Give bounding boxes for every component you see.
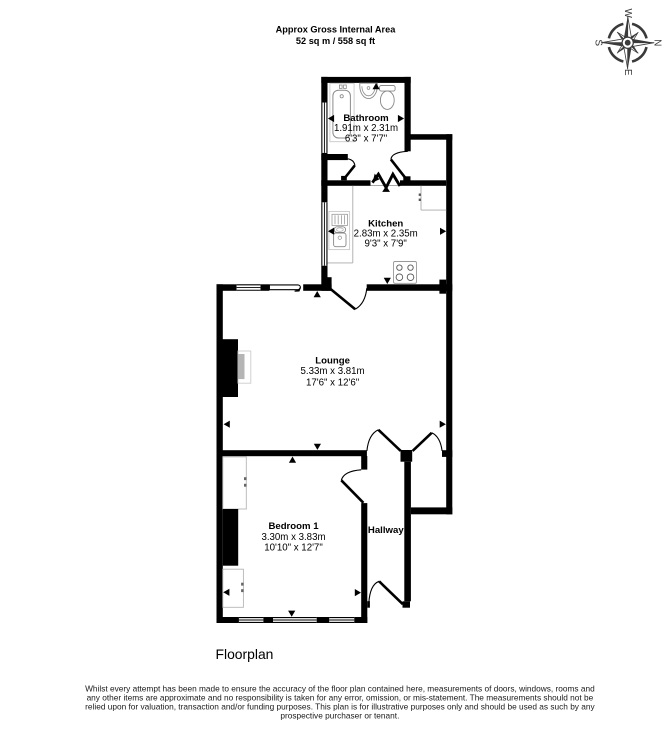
svg-text:52 sq m / 558 sq ft: 52 sq m / 558 sq ft — [296, 36, 375, 46]
svg-text:S: S — [593, 39, 604, 46]
svg-text:17'6" x 12'6": 17'6" x 12'6" — [306, 377, 360, 388]
svg-text:W: W — [622, 8, 633, 18]
svg-text:Floorplan: Floorplan — [216, 646, 274, 662]
svg-text:5.33m x 3.81m: 5.33m x 3.81m — [301, 366, 365, 377]
svg-text:N: N — [652, 39, 663, 46]
svg-text:9'3" x 7'9": 9'3" x 7'9" — [365, 238, 408, 249]
svg-text:Approx Gross Internal Area: Approx Gross Internal Area — [276, 25, 397, 35]
svg-text:Hallway: Hallway — [368, 525, 404, 536]
svg-text:Bedroom 1: Bedroom 1 — [268, 521, 319, 532]
svg-text:Lounge: Lounge — [315, 355, 350, 366]
svg-text:prospective purchaser or tenan: prospective purchaser or tenant. — [280, 710, 399, 720]
svg-text:10'10" x 12'7": 10'10" x 12'7" — [264, 542, 323, 553]
svg-text:6'3" x 7'7": 6'3" x 7'7" — [345, 133, 388, 144]
svg-text:E: E — [622, 69, 633, 76]
